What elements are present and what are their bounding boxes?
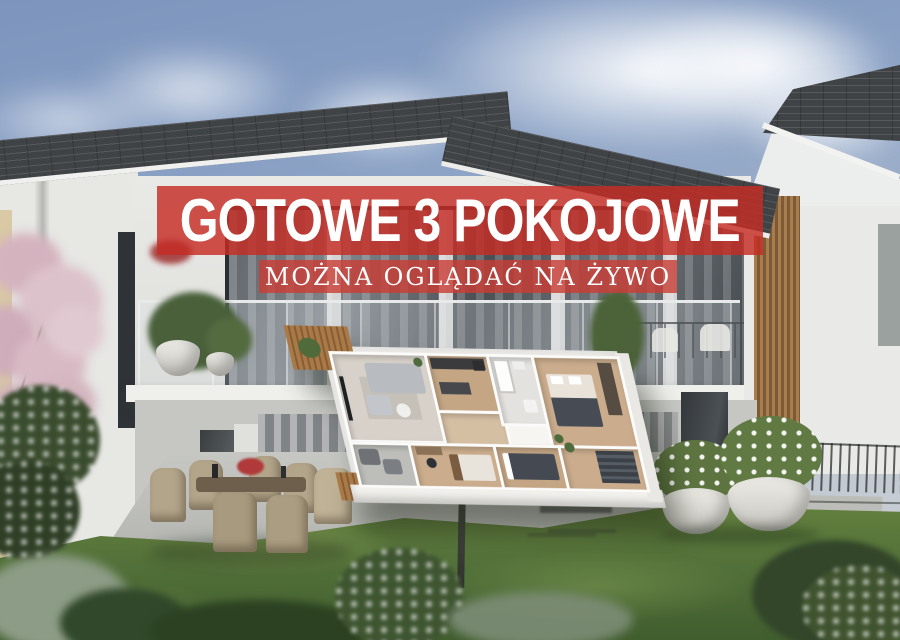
plan-pillow xyxy=(550,376,564,384)
plan-bed xyxy=(502,453,560,480)
balcony-chair xyxy=(652,328,678,352)
plan-washer xyxy=(523,400,539,413)
plan-lounge-chair xyxy=(382,459,403,474)
real-estate-ad: GOTOWE 3 POKOJOWE MOŻNA OGLĄDAĆ NA ŻYWO xyxy=(0,0,900,640)
plan-sofa xyxy=(364,363,427,394)
plan-fridge xyxy=(472,361,485,371)
plan-tv xyxy=(339,376,353,420)
balcony-chair xyxy=(700,324,730,351)
table-item xyxy=(281,466,286,478)
garden-fence xyxy=(811,442,900,493)
subheadline-banner: MOŻNA OGLĄDAĆ NA ŻYWO xyxy=(259,260,677,293)
silver-grass xyxy=(448,592,633,640)
plan-bedroom-3 xyxy=(557,445,651,493)
plan-pillow xyxy=(568,376,582,384)
table-flowers xyxy=(237,458,264,475)
garden-chair xyxy=(213,492,257,552)
blossom-cluster xyxy=(48,305,104,357)
headline-text: GOTOWE 3 POKOJOWE xyxy=(180,186,740,256)
table-item xyxy=(212,464,218,478)
garden-chair xyxy=(150,468,186,522)
plan-bed xyxy=(449,454,497,481)
plan-sink xyxy=(512,361,526,369)
plan-wardrobe xyxy=(597,363,623,415)
plan-island xyxy=(439,382,472,395)
planter-shadow xyxy=(660,526,820,544)
plan-desk xyxy=(415,447,443,455)
subheadline-text: MOŻNA OGLĄDAĆ NA ŻYWO xyxy=(265,263,671,291)
plan-dark-furniture xyxy=(595,451,640,484)
plan-sofa xyxy=(365,395,394,416)
right-building-gray-panel xyxy=(878,224,900,346)
garden-table xyxy=(196,477,306,492)
plan-lounge-chair xyxy=(358,449,382,465)
plan-desk-chair xyxy=(425,458,437,468)
headline-banner: GOTOWE 3 POKOJOWE xyxy=(157,186,763,255)
floor-plan-3d xyxy=(322,346,649,492)
flower-bush xyxy=(335,548,463,640)
garden-chair xyxy=(266,495,308,553)
plan-plant xyxy=(553,434,564,443)
